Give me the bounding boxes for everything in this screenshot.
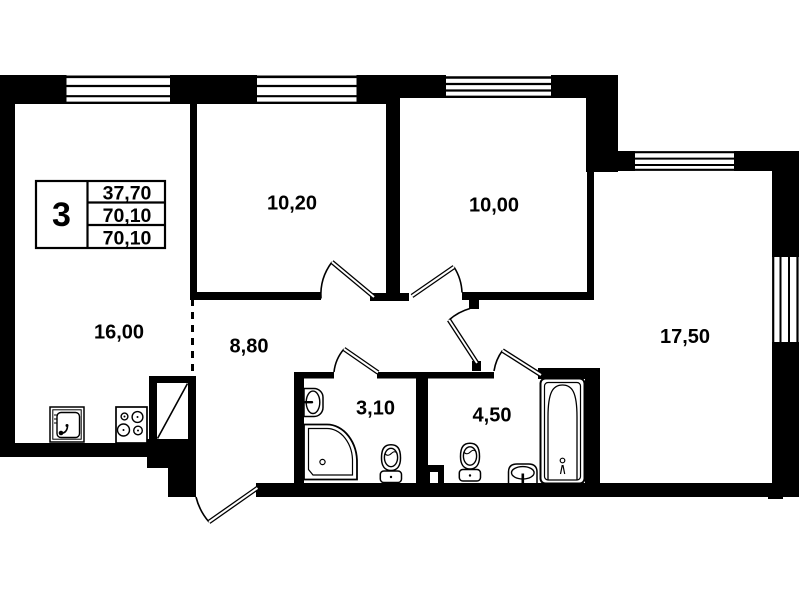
svg-text:17,50: 17,50 bbox=[660, 326, 710, 348]
svg-text:3,10: 3,10 bbox=[356, 398, 395, 420]
svg-text:70,10: 70,10 bbox=[103, 228, 152, 250]
svg-text:70,10: 70,10 bbox=[103, 205, 152, 227]
svg-text:8,80: 8,80 bbox=[230, 336, 269, 358]
svg-text:4,50: 4,50 bbox=[473, 405, 512, 427]
svg-text:16,00: 16,00 bbox=[94, 321, 144, 343]
svg-text:3: 3 bbox=[52, 196, 71, 234]
svg-text:10,20: 10,20 bbox=[267, 192, 317, 214]
svg-text:10,00: 10,00 bbox=[469, 195, 519, 217]
svg-text:37,70: 37,70 bbox=[103, 183, 152, 205]
